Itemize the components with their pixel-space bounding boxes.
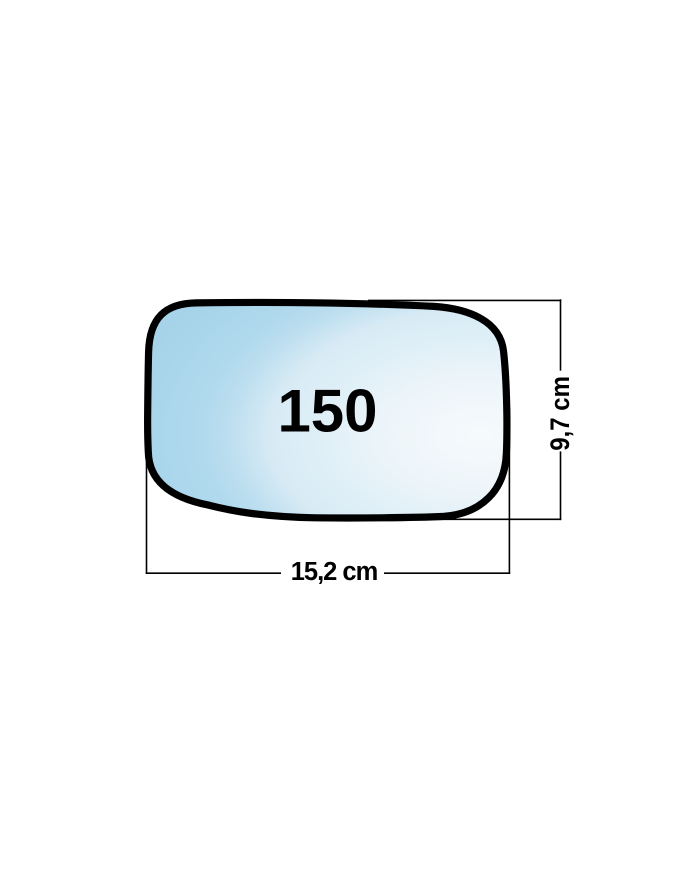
svg-text:9,7 cm: 9,7 cm xyxy=(546,376,576,451)
svg-text:150: 150 xyxy=(277,378,377,445)
svg-text:15,2 cm: 15,2 cm xyxy=(291,558,378,586)
